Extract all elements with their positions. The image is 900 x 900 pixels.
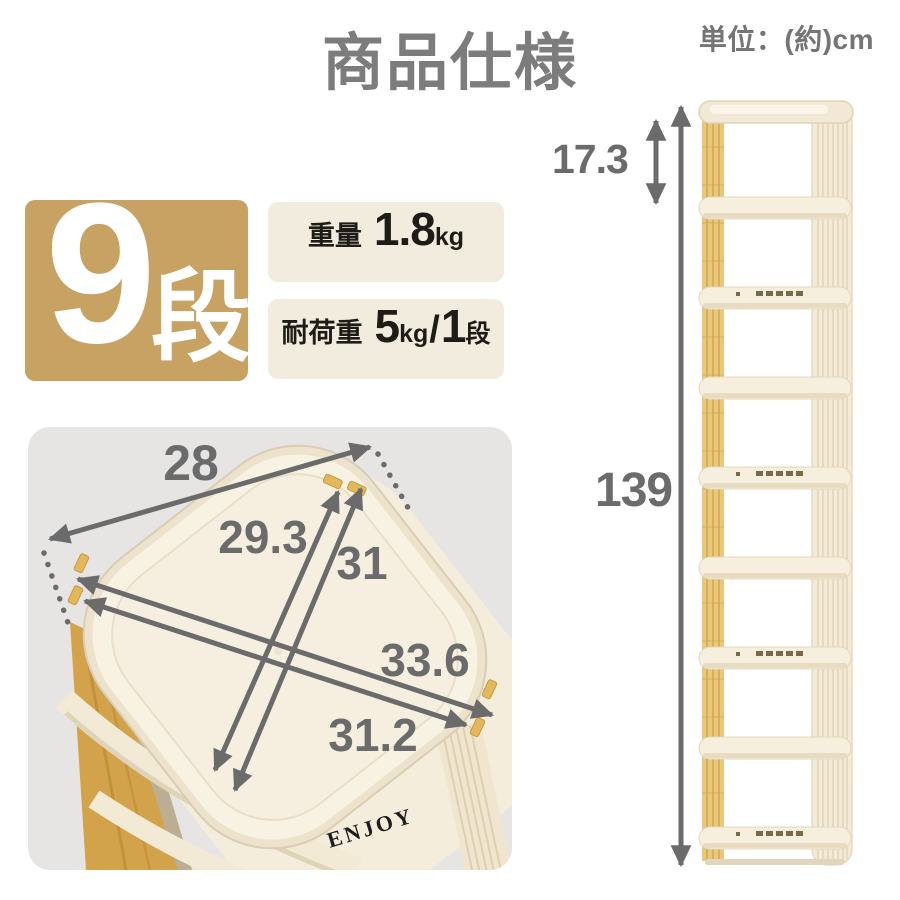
spec-load-per-unit: 段: [465, 314, 490, 350]
dim-label-31: 31: [336, 537, 387, 589]
top-view-photo: ENJOY 28 29.3 31 33.6 31.2: [28, 427, 512, 870]
dim-label-29-3: 29.3: [218, 511, 308, 563]
spec-load-unit: kg: [399, 320, 428, 349]
dim-label-31-2: 31.2: [328, 709, 418, 761]
spec-weight-value: 1.8: [374, 202, 435, 256]
dim-label-33-6: 33.6: [380, 634, 470, 686]
spec-weight: 重量 1.8 kg: [268, 202, 504, 282]
tier-count-number: 9: [45, 200, 156, 374]
top-rim-highlight: [710, 105, 828, 114]
side-elevation: [550, 95, 900, 885]
tier-count-unit: 段: [151, 268, 248, 368]
spec-load: 耐荷重 5 kg / 1 段: [268, 299, 504, 379]
shoe-rack-side-view: [699, 101, 853, 865]
spec-load-value: 5: [375, 299, 400, 353]
spec-load-per-value: 1: [441, 299, 466, 353]
spec-weight-label: 重量: [308, 214, 362, 253]
top-view-diagram: ENJOY 28 29.3 31 33.6 31.2: [28, 427, 512, 870]
spec-load-label: 耐荷重: [282, 311, 363, 350]
spec-weight-unit: kg: [435, 223, 464, 252]
rack-base: [705, 859, 845, 865]
unit-label: 単位：(約)cm: [699, 18, 874, 58]
dim-label-28: 28: [163, 435, 219, 491]
tier-count-badge: 9 段: [25, 200, 248, 381]
spec-load-separator: /: [429, 309, 440, 352]
